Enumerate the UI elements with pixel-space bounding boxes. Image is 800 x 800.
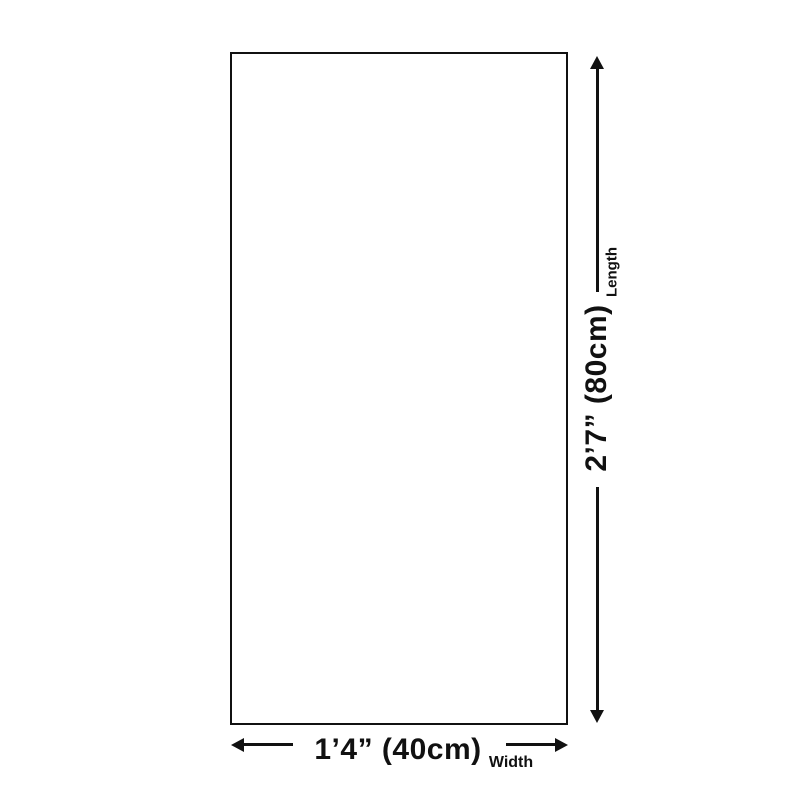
length-arrow-line-bottom xyxy=(596,487,599,711)
width-arrow-line-left xyxy=(243,743,293,746)
width-caption: Width xyxy=(489,754,533,772)
length-arrow-line-top xyxy=(596,67,599,292)
arrow-right-icon xyxy=(555,738,568,752)
width-arrow-line-right xyxy=(506,743,556,746)
length-caption: Length xyxy=(604,247,621,297)
width-value: 1’4” (40cm) xyxy=(314,733,481,767)
dimension-diagram: Length 2’7” (80cm) 1’4” (40cm) Width xyxy=(0,0,800,800)
product-outline-rectangle xyxy=(230,52,568,725)
arrow-down-icon xyxy=(590,710,604,723)
length-value: 2’7” (80cm) xyxy=(580,304,614,471)
